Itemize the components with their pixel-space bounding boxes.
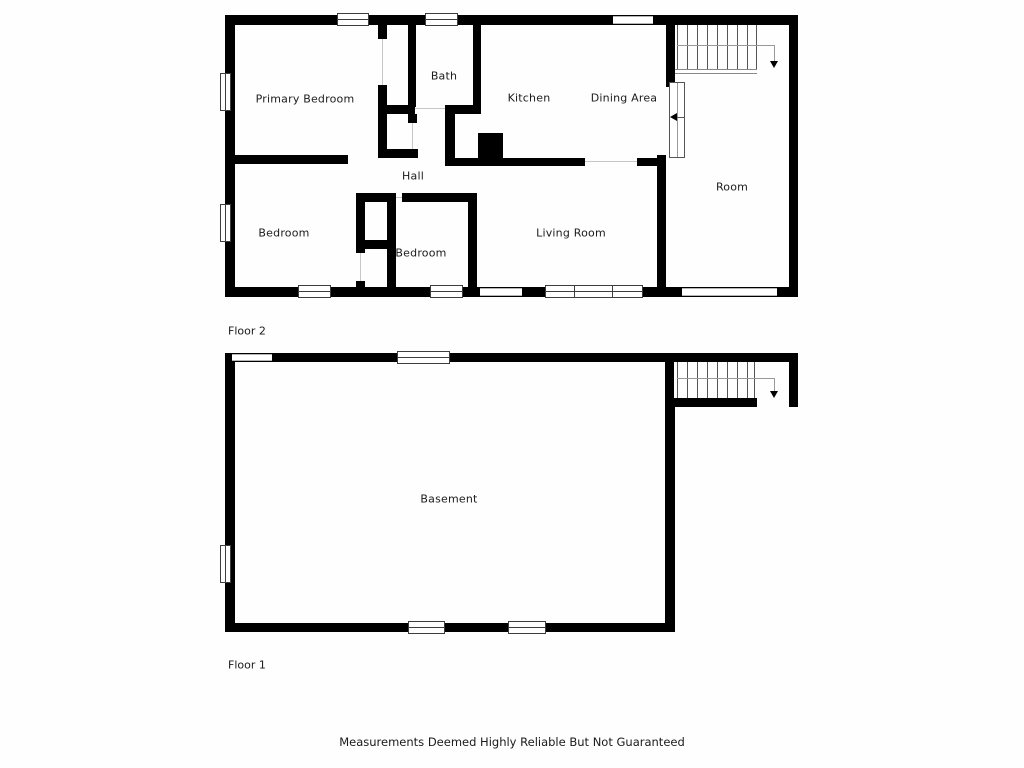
floor1-caption: Floor 1 (228, 659, 266, 672)
floor2-caption: Floor 2 (228, 325, 266, 338)
floor1-plan: Basement Floor 1 (0, 0, 1024, 768)
door-opening (396, 197, 402, 198)
room-label-dining-area: Dining Area (591, 92, 658, 105)
wall-opening (613, 16, 653, 24)
wall-opening (232, 354, 272, 361)
window (337, 13, 369, 26)
wall-opening (480, 288, 522, 296)
staircase-treads (677, 25, 757, 69)
room-label-bedroom-middle: Bedroom (395, 247, 446, 260)
wall-segment (789, 353, 798, 407)
wall-segment (225, 623, 675, 632)
room-label-bath: Bath (431, 70, 457, 83)
door-opening (585, 161, 637, 162)
window (545, 285, 643, 298)
door-opening (360, 253, 361, 281)
wall-segment (665, 407, 675, 632)
window (298, 285, 331, 298)
stairs-down-arrow-icon (770, 391, 778, 398)
room-label-primary-bedroom: Primary Bedroom (256, 93, 355, 106)
door-opening (382, 39, 383, 85)
door-opening (412, 123, 413, 149)
disclaimer-text: Measurements Deemed Highly Reliable But … (339, 735, 685, 749)
window (220, 204, 231, 242)
staircase-run-line (677, 45, 774, 46)
door-opening (415, 108, 445, 109)
room-label-kitchen: Kitchen (508, 92, 551, 105)
wall-opening (682, 288, 777, 296)
room-label-hall: Hall (402, 170, 424, 183)
wall-segment (665, 398, 757, 407)
window (425, 13, 458, 26)
stairs-down-arrow-icon (770, 61, 778, 68)
window (220, 545, 231, 583)
floor-plan-page: { "colors": { "wall": "#000000", "window… (0, 0, 1024, 768)
door-direction-arrow-icon (670, 113, 677, 121)
door-swing-line (676, 117, 685, 118)
window (220, 73, 231, 111)
room-label-living-room: Living Room (536, 227, 606, 240)
staircase-run-line (677, 378, 774, 379)
room-label-basement: Basement (420, 493, 477, 506)
wall-segment (225, 353, 235, 632)
wall-segment (665, 358, 674, 398)
staircase-run-line (774, 45, 775, 61)
wall-segment (225, 353, 798, 362)
window-mullion (574, 286, 575, 297)
staircase-run-line (774, 378, 775, 392)
window (397, 351, 450, 364)
window (408, 621, 445, 634)
staircase-edge (675, 69, 757, 74)
staircase-treads (677, 362, 755, 398)
window-mullion (612, 286, 613, 297)
room-label-room: Room (716, 181, 748, 194)
room-label-bedroom-west: Bedroom (258, 227, 309, 240)
window (508, 621, 546, 634)
window (430, 285, 463, 298)
